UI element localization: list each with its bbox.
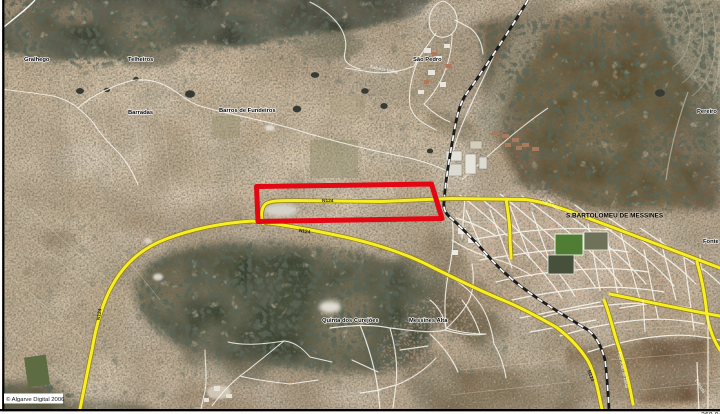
svg-text:São Pedro: São Pedro [413,57,442,63]
svg-text:Telheiros: Telheiros [128,57,153,63]
svg-text:Barros de Fundeiros: Barros de Fundeiros [219,108,276,114]
svg-text:S.BARTOLOMEU DE MESSINES: S.BARTOLOMEU DE MESSINES [566,213,664,220]
svg-text:Quinta dos Curejões: Quinta dos Curejões [322,318,379,324]
svg-text:Gralhego: Gralhego [24,57,50,63]
svg-text:© Algarve Digital 2006: © Algarve Digital 2006 [6,396,65,403]
svg-text:Messines Alta: Messines Alta [409,318,448,324]
svg-text:N124: N124 [322,198,334,204]
svg-text:Barradas: Barradas [128,110,153,116]
svg-text:Pereiro: Pereiro [697,109,717,115]
svg-text:Fonte: Fonte [703,239,720,245]
